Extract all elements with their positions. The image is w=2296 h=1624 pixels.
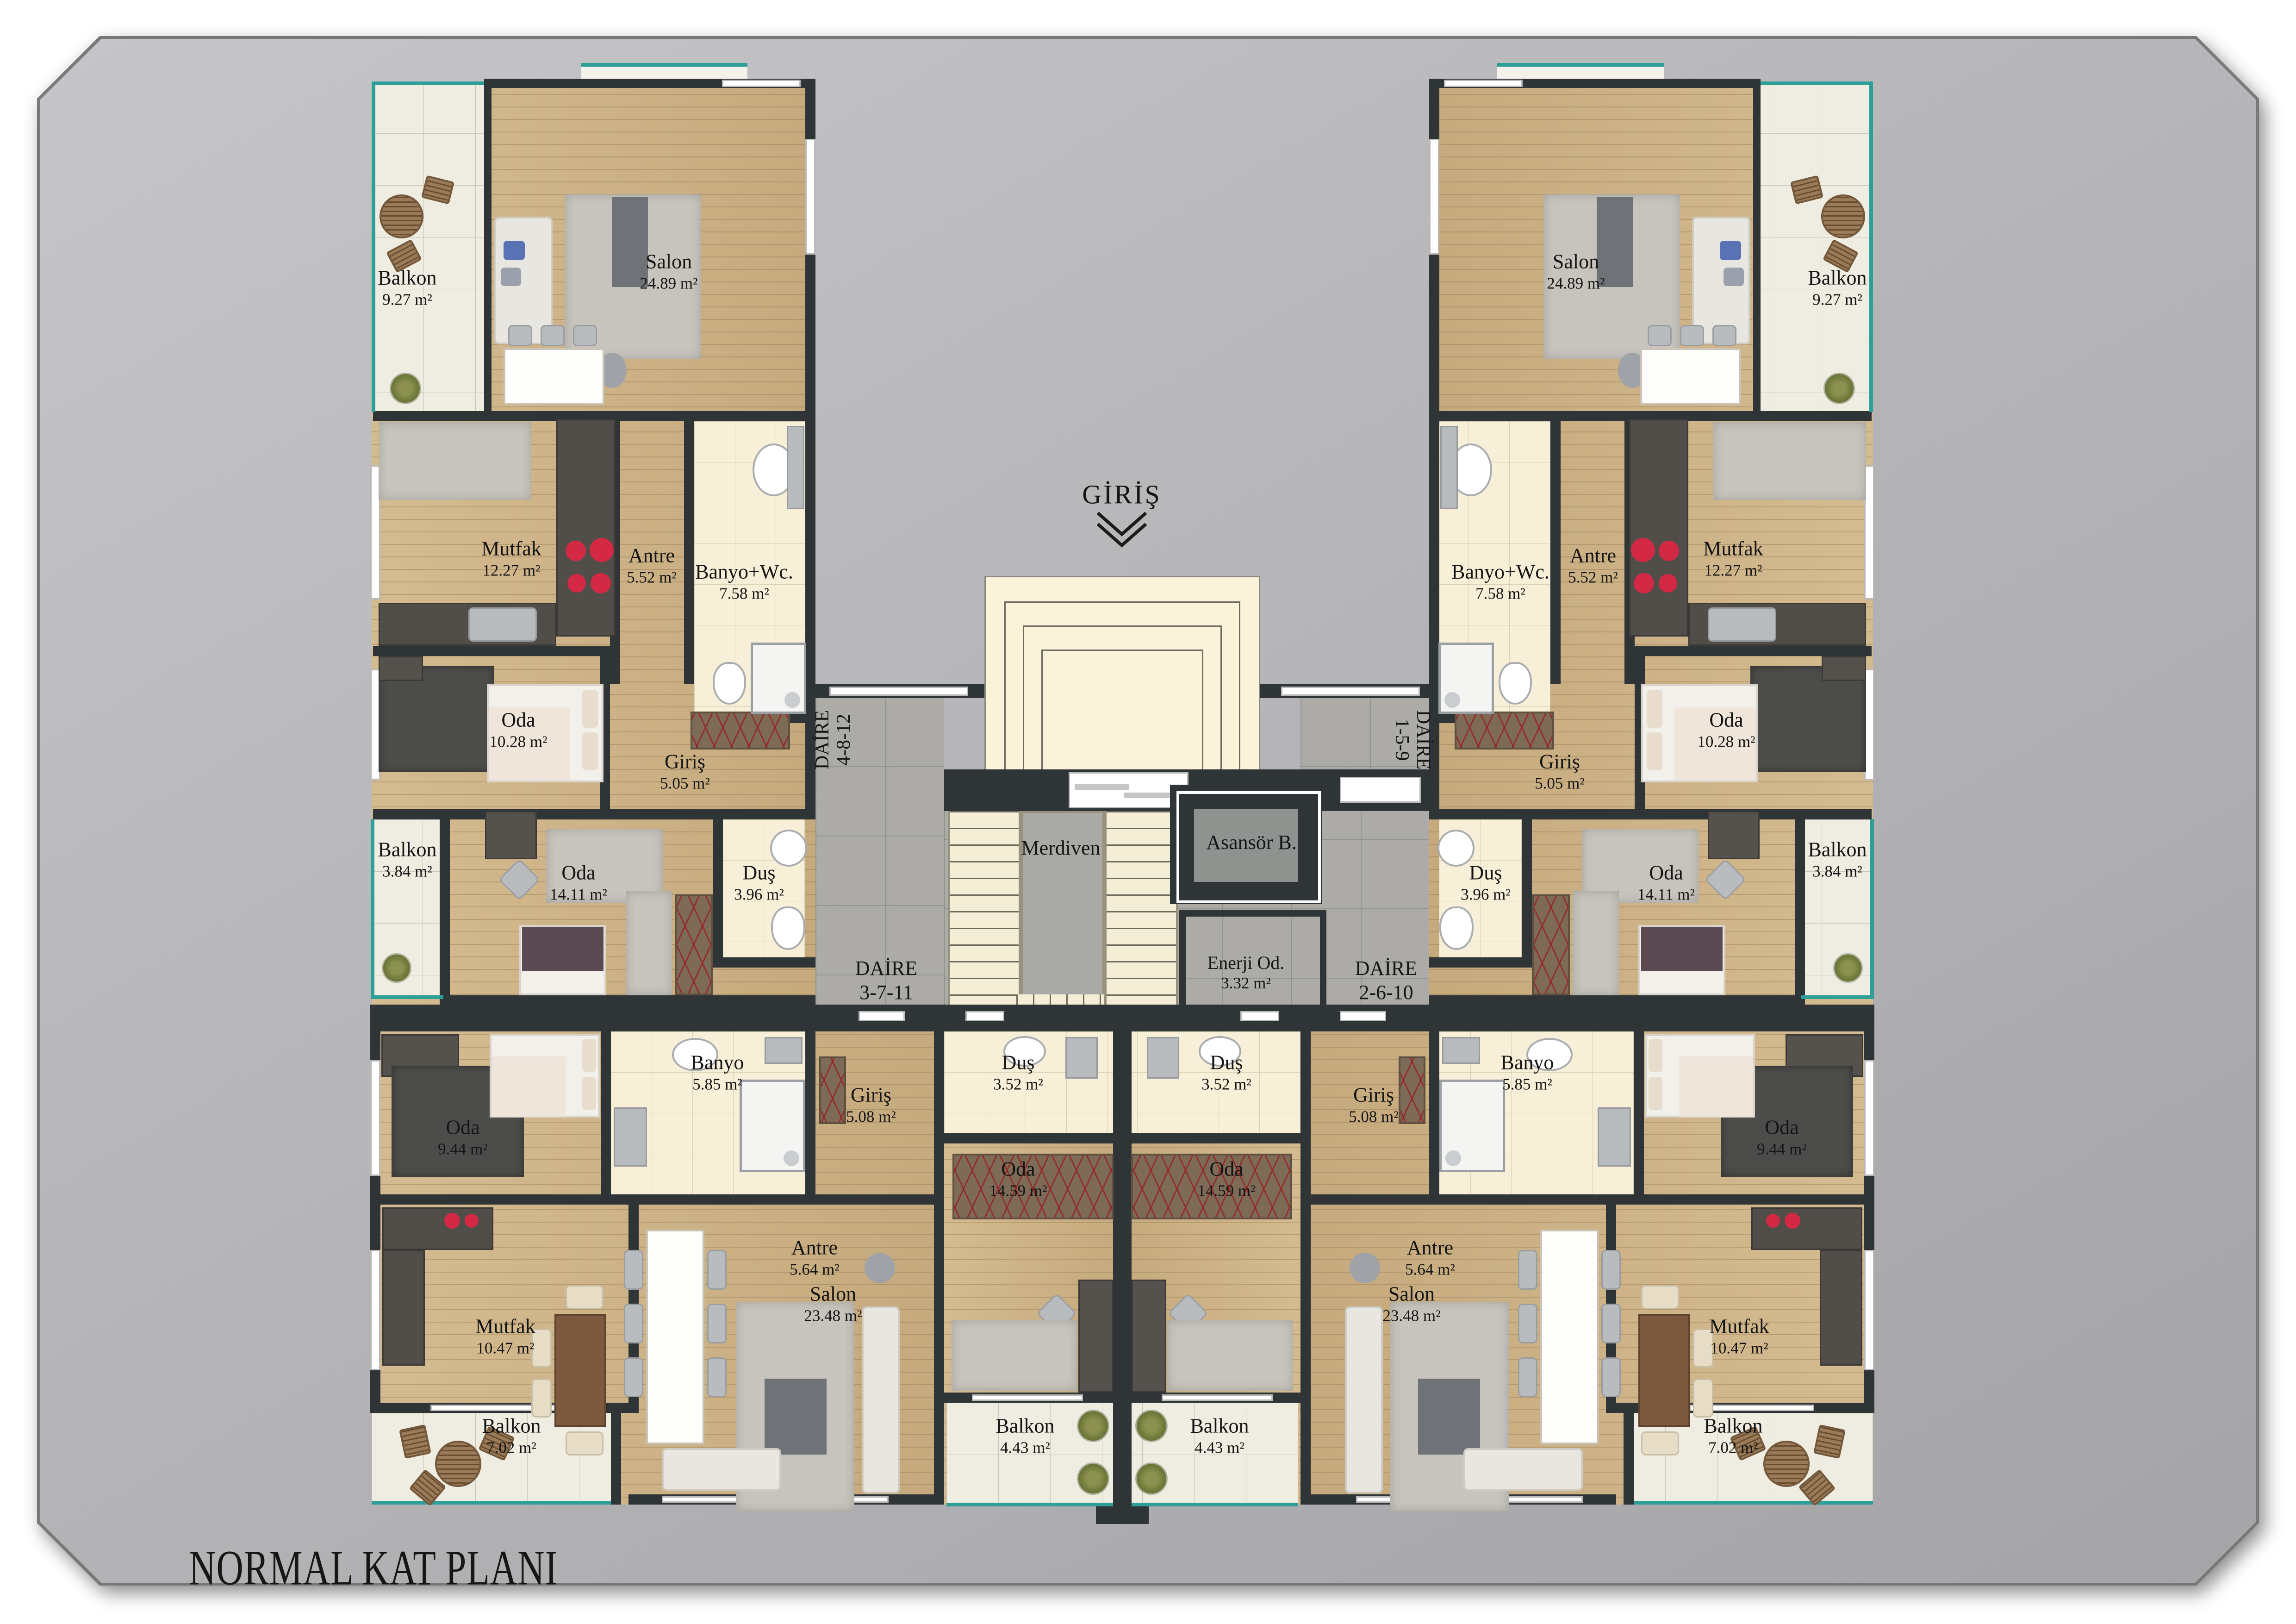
daire-label-1-5-9: DAİRE 1-5-9 xyxy=(1391,710,1434,769)
page-title: NORMAL KAT PLANI xyxy=(189,1540,558,1597)
daire-label-3-7-11: DAİRE 3-7-11 xyxy=(855,956,917,1005)
merdiven-label: Merdiven xyxy=(1021,836,1100,860)
daire-label-4-8-12: DAİRE 4-8-12 xyxy=(812,710,854,769)
asansor-label: Asansör B. xyxy=(1206,831,1297,855)
annotation-layer: GİRİŞ DAİRE 4-8-12 DAİRE 1-5-9 Merdiven … xyxy=(0,0,2296,1624)
entrance-label: GİRİŞ xyxy=(1082,479,1161,510)
floor-plan-page: { "title": "NORMAL KAT PLANI", "entrance… xyxy=(0,0,2296,1624)
daire-label-2-6-10: DAİRE 2-6-10 xyxy=(1355,956,1417,1005)
entrance-arrow-icon xyxy=(1094,510,1150,553)
enerji-label: Enerji Od. 3.32 m² xyxy=(1207,952,1285,993)
